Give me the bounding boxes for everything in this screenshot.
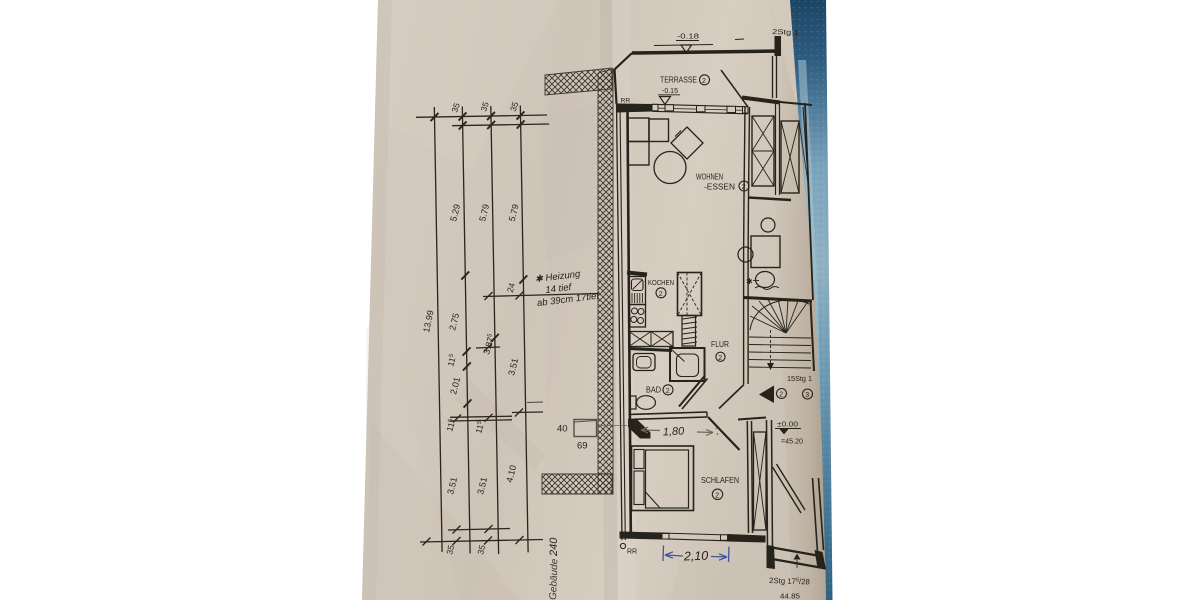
svg-text:Gebäude: Gebäude [548, 558, 560, 600]
svg-text:RR: RR [627, 549, 637, 556]
svg-text:✱: ✱ [746, 277, 753, 286]
svg-text:FLUR: FLUR [711, 340, 729, 349]
svg-text:2Stg 175/28: 2Stg 175/28 [769, 576, 810, 586]
svg-text:2: 2 [718, 355, 722, 362]
svg-text:RR: RR [621, 98, 631, 105]
svg-text:BAD: BAD [646, 386, 661, 395]
svg-text:69: 69 [577, 441, 588, 452]
svg-text:KOCHEN: KOCHEN [648, 278, 674, 287]
svg-text:2: 2 [715, 492, 719, 499]
svg-text:2: 2 [666, 388, 670, 395]
svg-text:15Stg 1: 15Stg 1 [787, 374, 812, 383]
svg-text:=45.20: =45.20 [781, 439, 803, 446]
svg-text:2: 2 [659, 291, 663, 298]
svg-text:2: 2 [702, 78, 706, 85]
svg-text:-0.15: -0.15 [662, 86, 678, 95]
svg-text:±0.00: ±0.00 [777, 422, 798, 429]
svg-text:2: 2 [779, 392, 783, 399]
svg-text:240: 240 [548, 537, 560, 557]
svg-text:2: 2 [742, 184, 746, 191]
svg-text:-ESSEN: -ESSEN [704, 182, 735, 191]
svg-text:40: 40 [557, 424, 568, 435]
svg-text:3: 3 [805, 392, 809, 399]
svg-text:WOHNEN: WOHNEN [696, 173, 723, 182]
svg-text:TERRASSE: TERRASSE [660, 76, 697, 85]
svg-text:2Stg 1: 2Stg 1 [772, 27, 799, 37]
svg-text:-0.18: -0.18 [677, 32, 699, 41]
svg-text:SCHLAFEN: SCHLAFEN [701, 476, 739, 485]
svg-text:2,10: 2,10 [683, 549, 709, 564]
svg-text:44.85: 44.85 [780, 592, 800, 600]
svg-text:1,80: 1,80 [663, 425, 686, 438]
